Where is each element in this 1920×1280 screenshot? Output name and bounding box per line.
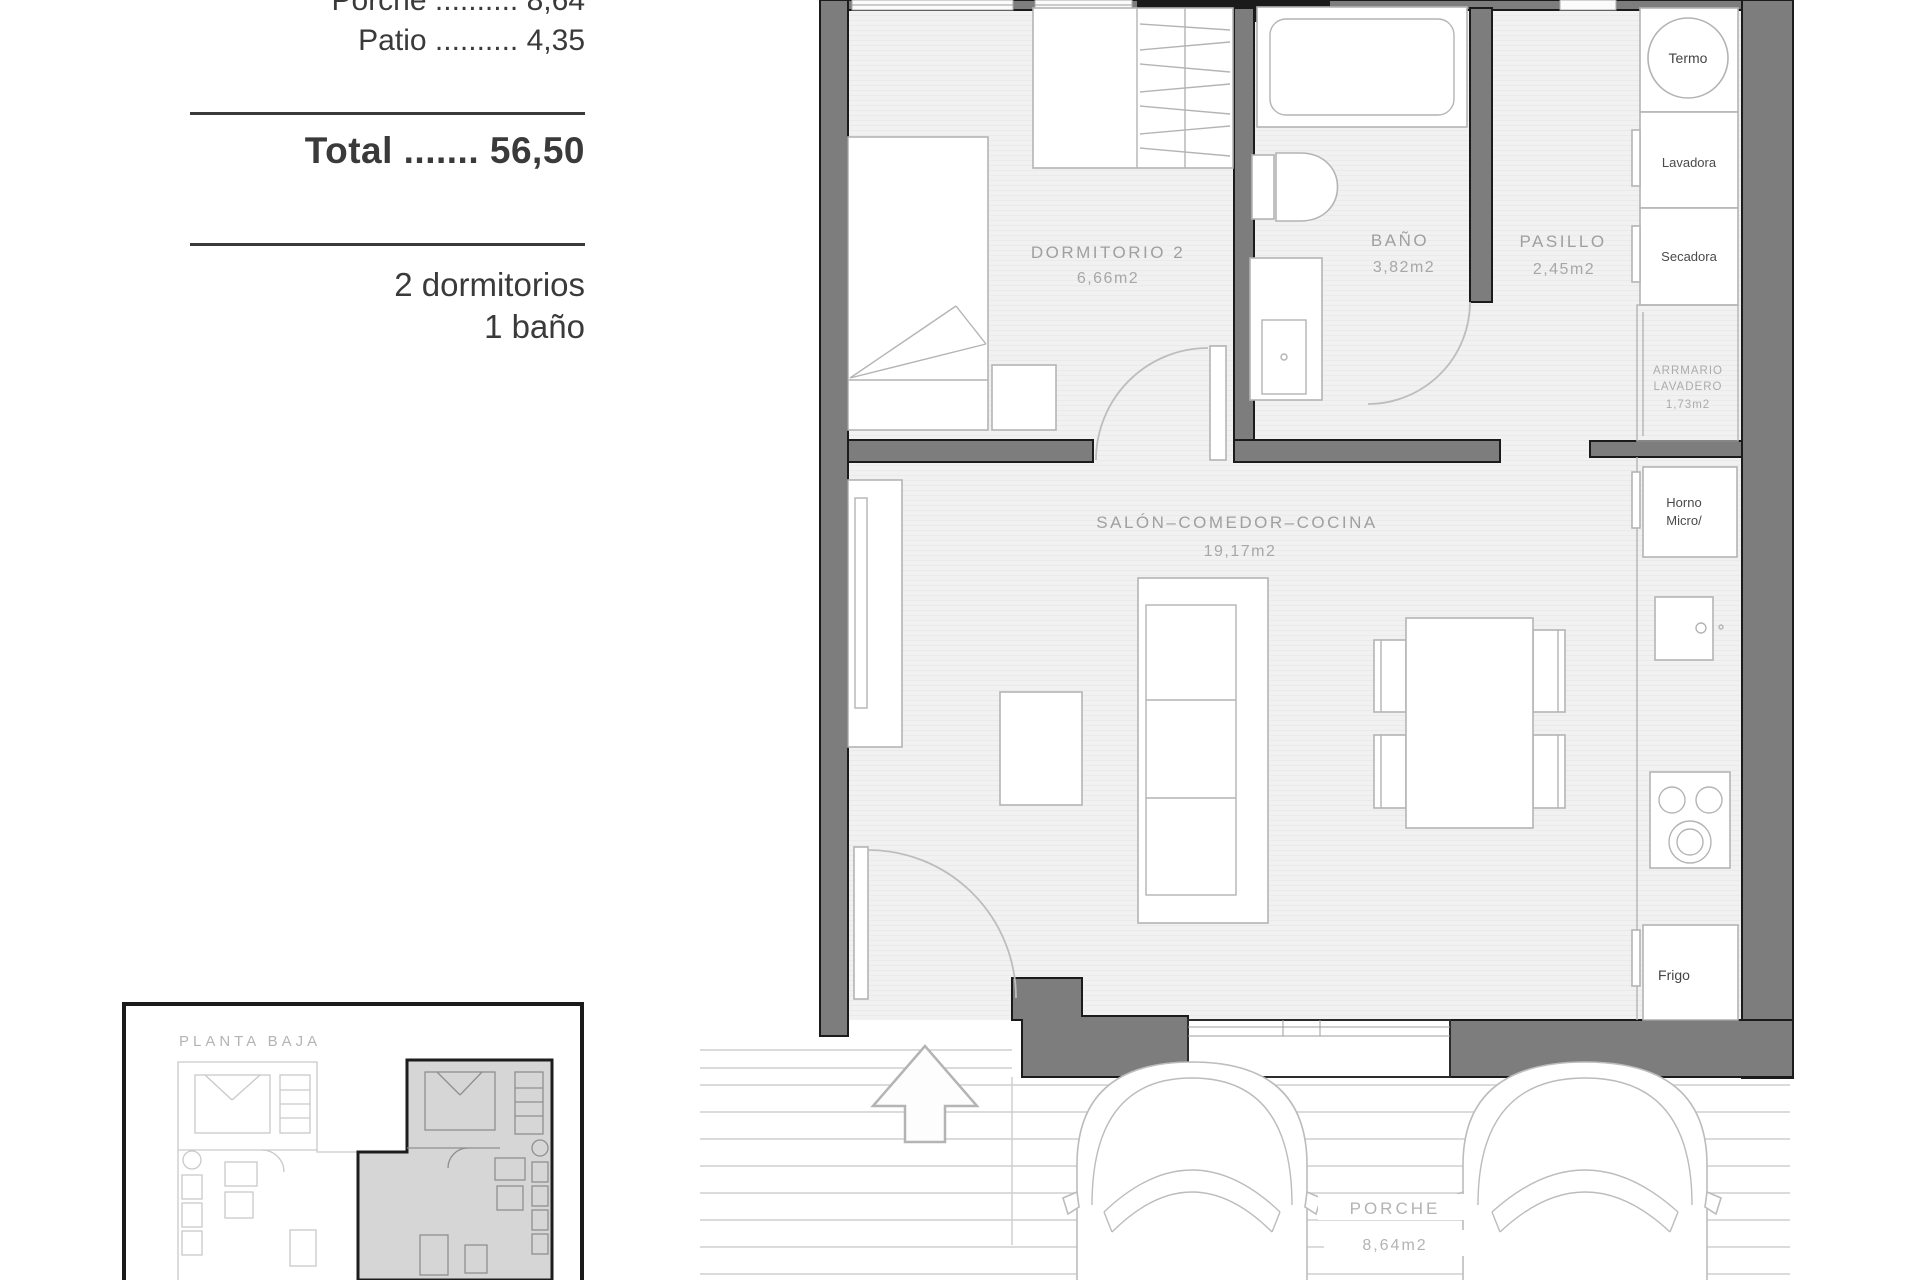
entrance-arrow bbox=[873, 1046, 977, 1142]
thumbnail-title: PLANTA BAJA bbox=[179, 1033, 321, 1050]
stove bbox=[1650, 772, 1730, 868]
floor-plan-drawing: DORMITORIO 2 6,66m2 BAÑO 3,82m2 PASILLO … bbox=[0, 0, 1920, 1280]
label-armario-2: LAVADERO bbox=[1654, 381, 1723, 393]
area-salon: 19,17m2 bbox=[1204, 543, 1277, 560]
area-value: 4,35 bbox=[527, 24, 585, 57]
location-thumbnail: PLANTA BAJA bbox=[124, 1004, 582, 1280]
kitchen-sink bbox=[1655, 597, 1723, 660]
bed bbox=[848, 137, 988, 430]
dining-table bbox=[1406, 618, 1533, 828]
label-bano: BAÑO bbox=[1371, 231, 1429, 250]
label-dormitorio2: DORMITORIO 2 bbox=[1031, 243, 1185, 262]
label-micro: Micro/ bbox=[1666, 513, 1702, 528]
area-bano: 3,82m2 bbox=[1373, 259, 1435, 276]
porch-label: PORCHE 8,64m2 bbox=[1318, 1194, 1474, 1256]
tv-unit bbox=[848, 480, 902, 747]
feature-bedrooms: 2 dormitorios bbox=[394, 266, 585, 304]
entrance-door-leaf bbox=[854, 847, 868, 999]
label-lavadora: Lavadora bbox=[1662, 155, 1717, 170]
label-armario-1: ARRMARIO bbox=[1653, 365, 1723, 377]
dot-leader: .......... bbox=[435, 0, 518, 17]
area-row-patio: Patio .......... 4,35 bbox=[358, 24, 585, 58]
label-frigo: Frigo bbox=[1658, 967, 1690, 983]
total-value: 56,50 bbox=[490, 130, 585, 171]
svg-text:PORCHE: PORCHE bbox=[1350, 1199, 1441, 1218]
label-secadora: Secadora bbox=[1661, 249, 1717, 264]
area-pasillo: 2,45m2 bbox=[1533, 261, 1595, 278]
dot-leader: .......... bbox=[435, 24, 518, 57]
label-horno: Horno bbox=[1666, 495, 1701, 510]
divider-line bbox=[190, 243, 585, 246]
bedroom-door-leaf bbox=[1210, 346, 1226, 460]
car-left bbox=[1063, 1062, 1321, 1280]
bathtub bbox=[1257, 7, 1467, 127]
oven-microwave-box bbox=[1643, 467, 1737, 557]
area-label: Porche bbox=[332, 0, 427, 17]
label-pasillo: PASILLO bbox=[1519, 232, 1606, 251]
sofa bbox=[1138, 578, 1268, 923]
coffee-table bbox=[1000, 692, 1082, 805]
total-row: Total ....... 56,50 bbox=[305, 130, 585, 172]
dot-leader: ....... bbox=[404, 130, 479, 171]
label-termo: Termo bbox=[1669, 50, 1708, 66]
sink-vanity bbox=[1250, 258, 1322, 400]
nightstand bbox=[992, 365, 1056, 430]
wardrobe bbox=[1033, 8, 1233, 168]
total-label: Total bbox=[305, 130, 393, 171]
area-value: 8,64 bbox=[527, 0, 585, 17]
area-dormitorio2: 6,66m2 bbox=[1077, 270, 1139, 287]
divider-line bbox=[190, 112, 585, 115]
svg-text:8,64m2: 8,64m2 bbox=[1362, 1237, 1427, 1254]
area-armario: 1,73m2 bbox=[1666, 399, 1710, 411]
area-label: Patio bbox=[358, 24, 426, 57]
feature-bathrooms: 1 baño bbox=[484, 308, 585, 346]
car-right bbox=[1449, 1062, 1721, 1280]
area-row-porche: Porche .......... 8,64 bbox=[332, 0, 586, 18]
label-salon: SALÓN–COMEDOR–COCINA bbox=[1096, 513, 1377, 532]
toilet bbox=[1252, 153, 1338, 221]
